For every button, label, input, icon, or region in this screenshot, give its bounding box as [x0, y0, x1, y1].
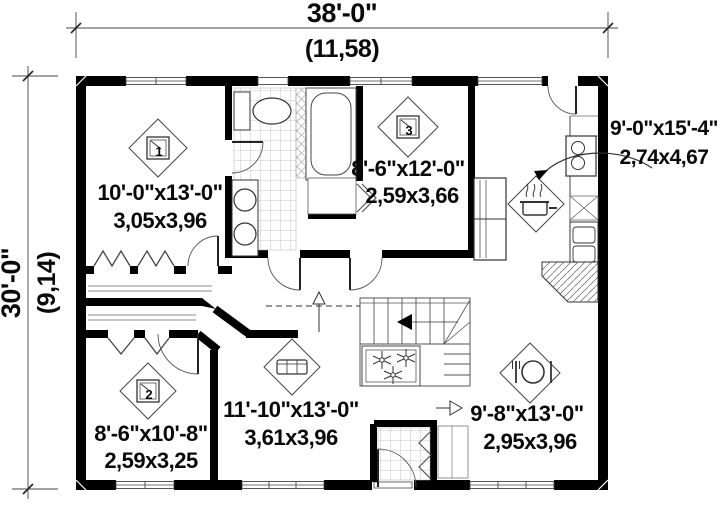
- kitchen-size-metric: 2,74x4,67: [620, 146, 709, 169]
- dining-size-metric: 2,95x3,96: [483, 429, 577, 454]
- cabinet-x-icon: [570, 196, 598, 220]
- bar-counter: [542, 262, 598, 302]
- bathroom-door-swing: [268, 258, 300, 290]
- dimension-top: 38'-0" (11,58): [66, 0, 618, 63]
- bedroom2-size-imperial: 8'-6"x10'-8": [94, 421, 207, 446]
- bathroom-window: [258, 78, 288, 85]
- bedroom1-size-metric: 3,05x3,96: [113, 208, 207, 233]
- double-vanity-icon: [232, 180, 258, 256]
- sofa-icon: [277, 360, 307, 374]
- kitchen-label-group: 9'-0"x15'-4" 2,74x4,67: [508, 117, 718, 232]
- kitchen-back-door-opening: [548, 76, 578, 86]
- living-size-imperial: 11'-10"x13'-0": [223, 397, 359, 422]
- refrigerator-icon: [474, 178, 506, 260]
- vestibule-tile-floor: [378, 428, 430, 480]
- depth-dimension-imperial: 30'-0": [0, 248, 26, 318]
- bedroom2-door-swing: [158, 334, 198, 374]
- right-arrow-marker-icon: [450, 401, 462, 415]
- bedroom1-door-swing: [188, 236, 218, 266]
- stove-icon: [566, 136, 596, 176]
- bifold-door-icon: [145, 338, 169, 354]
- living-room-label-group: 11'-10"x13'-0" 3,61x3,96: [223, 339, 359, 450]
- floor-plan-page: 38'-0" (11,58) 30'-0" (9,14): [0, 0, 720, 510]
- bifold-door-icon: [108, 338, 134, 354]
- dining-room-label-group: 9'-8"x13'-0" 2,95x3,96: [470, 343, 583, 454]
- bedroom1-number: 1: [155, 144, 162, 159]
- back-door-swing: [548, 86, 576, 114]
- width-dimension-metric: (11,58): [305, 35, 380, 63]
- width-dimension-imperial: 38'-0": [307, 0, 377, 28]
- dimension-left: 30'-0" (9,14): [0, 66, 61, 499]
- bedroom1-size-imperial: 10'-0"x13'-0": [97, 180, 222, 205]
- bedroom3-number: 3: [405, 123, 412, 138]
- bedroom2-size-metric: 2,59x3,25: [104, 448, 198, 473]
- staircase: [360, 298, 470, 386]
- up-arrow-marker-icon: [313, 292, 325, 304]
- bedroom2-number: 2: [145, 387, 152, 402]
- kitchen-size-imperial: 9'-0"x15'-4": [610, 117, 718, 140]
- dining-size-imperial: 9'-8"x13'-0": [470, 401, 583, 426]
- bifold-door-icon: [94, 251, 130, 266]
- front-door-threshold: [374, 482, 412, 488]
- depth-dimension-metric: (9,14): [33, 252, 61, 314]
- kitchen-sink-icon: [570, 222, 598, 262]
- bedroom2-label-group: 2 8'-6"x10'-8" 2,59x3,25: [94, 363, 207, 473]
- door-swings: [158, 86, 576, 487]
- entry-vestibule: [378, 426, 468, 480]
- planter-box: [362, 346, 420, 386]
- bedroom3-size-metric: 2,59x3,66: [365, 183, 459, 208]
- bedroom3-size-imperial: 8'-6"x12'-0": [351, 156, 464, 181]
- bedroom3-door-swing: [350, 258, 382, 290]
- entry-closet: [438, 426, 468, 478]
- bathtub-icon: [306, 88, 356, 180]
- bedroom3-label-group: 3 8'-6"x12'-0" 2,59x3,66: [351, 97, 464, 208]
- bedroom1-label-group: 1 10'-0"x13'-0" 3,05x3,96: [97, 119, 222, 233]
- floor-plan-canvas: 38'-0" (11,58) 30'-0" (9,14): [0, 0, 720, 510]
- living-size-metric: 3,61x3,96: [244, 425, 338, 450]
- bifold-door-icon: [138, 251, 174, 266]
